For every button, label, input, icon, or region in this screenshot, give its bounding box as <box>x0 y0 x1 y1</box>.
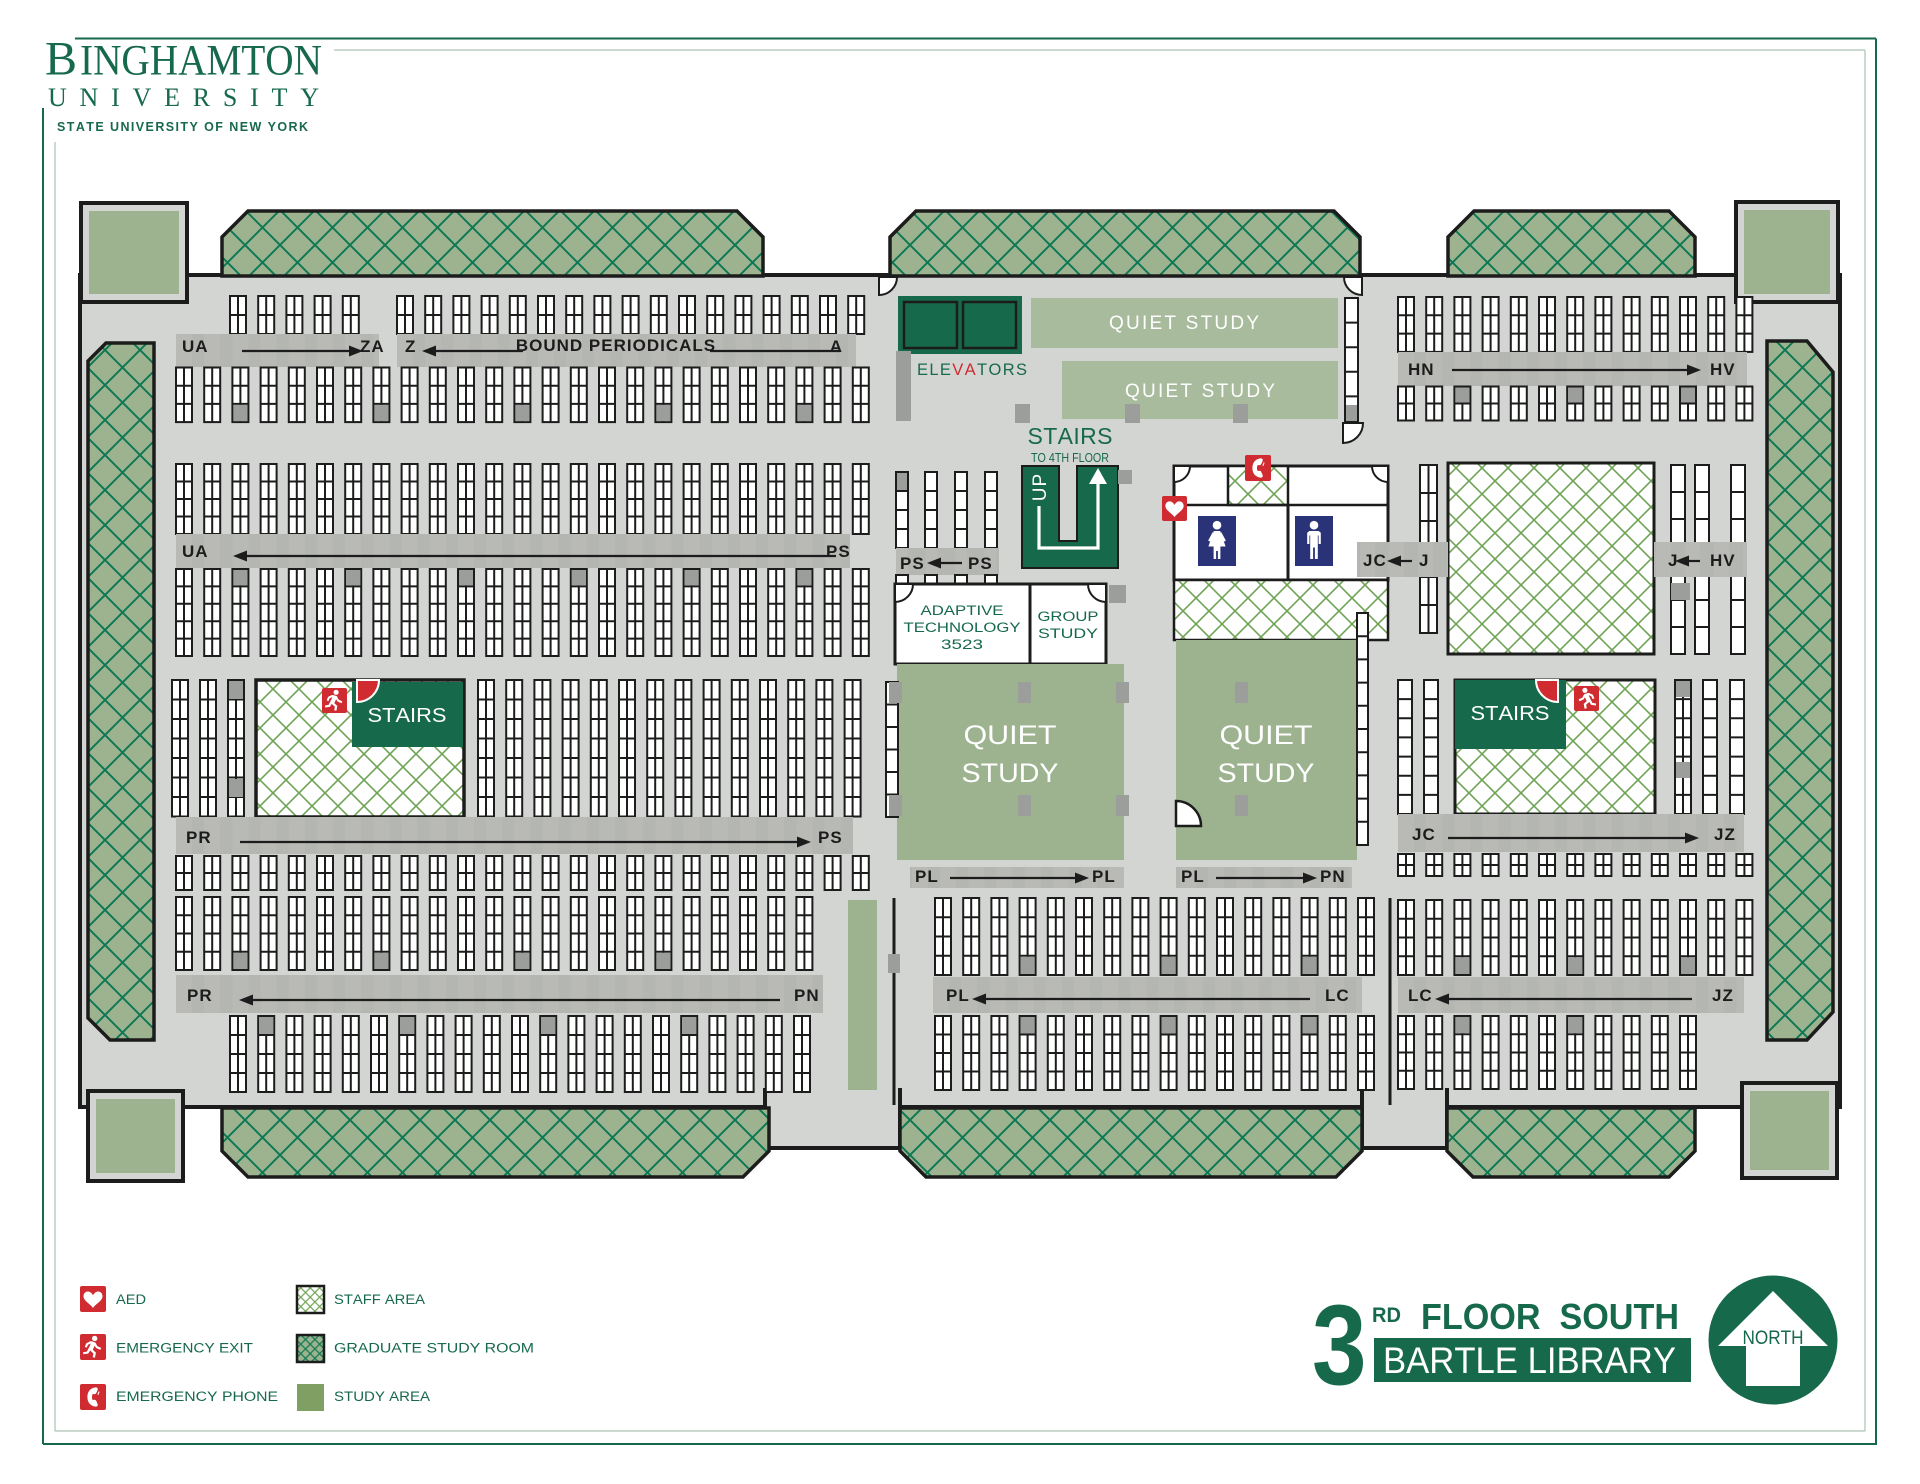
svg-text:GROUP: GROUP <box>1038 609 1099 624</box>
svg-text:UA: UA <box>182 337 209 356</box>
svg-text:EMERGENCY PHONE: EMERGENCY PHONE <box>116 1389 278 1404</box>
svg-text:PS: PS <box>900 554 925 573</box>
svg-text:EMERGENCY EXIT: EMERGENCY EXIT <box>116 1341 253 1356</box>
svg-text:UP: UP <box>1030 473 1051 501</box>
svg-text:QUIET: QUIET <box>1220 720 1313 750</box>
svg-text:PN: PN <box>794 986 820 1005</box>
svg-text:ELEVATORS: ELEVATORS <box>917 361 1027 379</box>
svg-text:HV: HV <box>1710 360 1736 379</box>
svg-text:FLOOR SOUTH: FLOOR SOUTH <box>1421 1296 1679 1337</box>
svg-text:STAIRS: STAIRS <box>1471 703 1550 725</box>
svg-text:Z: Z <box>405 337 416 356</box>
svg-text:RD: RD <box>1372 1304 1401 1327</box>
svg-text:LC: LC <box>1408 986 1433 1005</box>
svg-text:ADAPTIVE: ADAPTIVE <box>921 603 1004 618</box>
svg-text:JZ: JZ <box>1714 825 1736 844</box>
svg-text:JZ: JZ <box>1712 986 1734 1005</box>
svg-text:TECHNOLOGY: TECHNOLOGY <box>904 620 1021 635</box>
svg-text:HV: HV <box>1710 551 1736 570</box>
svg-text:PS: PS <box>818 828 843 847</box>
svg-text:PL: PL <box>1181 867 1205 886</box>
svg-text:PL: PL <box>915 867 939 886</box>
svg-text:3523: 3523 <box>941 637 983 652</box>
svg-text:STAFF AREA: STAFF AREA <box>334 1292 425 1307</box>
svg-text:JC: JC <box>1412 825 1436 844</box>
svg-text:GRADUATE STUDY ROOM: GRADUATE STUDY ROOM <box>334 1341 534 1356</box>
svg-text:HN: HN <box>1408 360 1435 379</box>
svg-text:STAIRS: STAIRS <box>368 705 447 727</box>
svg-text:PL: PL <box>1092 867 1116 886</box>
svg-text:UA: UA <box>182 542 209 561</box>
svg-text:LC: LC <box>1325 986 1350 1005</box>
svg-text:PN: PN <box>1320 867 1346 886</box>
svg-text:STATE UNIVERSITY OF NEW YORK: STATE UNIVERSITY OF NEW YORK <box>57 120 308 134</box>
svg-text:B: B <box>45 33 77 86</box>
svg-text:STUDY: STUDY <box>1038 626 1098 641</box>
svg-text:PS: PS <box>968 554 993 573</box>
svg-text:ZA: ZA <box>360 337 385 356</box>
svg-text:J: J <box>1419 551 1429 570</box>
svg-text:PR: PR <box>186 828 212 847</box>
svg-text:QUIET: QUIET <box>964 720 1057 750</box>
svg-text:BARTLE LIBRARY: BARTLE LIBRARY <box>1383 1340 1676 1381</box>
svg-text:TO 4TH FLOOR: TO 4TH FLOOR <box>1031 451 1109 465</box>
svg-text:STUDY: STUDY <box>962 758 1059 788</box>
svg-text:STAIRS: STAIRS <box>1028 423 1113 449</box>
svg-text:PS: PS <box>826 542 851 561</box>
svg-text:NORTH: NORTH <box>1743 1328 1804 1349</box>
svg-text:AED: AED <box>116 1292 146 1307</box>
svg-text:BOUND PERIODICALS: BOUND PERIODICALS <box>516 336 716 355</box>
svg-text:JC: JC <box>1363 551 1387 570</box>
svg-text:A: A <box>830 337 843 356</box>
svg-text:PR: PR <box>187 986 213 1005</box>
svg-text:STUDY AREA: STUDY AREA <box>334 1389 430 1404</box>
svg-text:PL: PL <box>946 986 970 1005</box>
svg-text:3: 3 <box>1312 1281 1367 1409</box>
svg-text:STUDY: STUDY <box>1218 758 1315 788</box>
svg-text:INGHAMTON: INGHAMTON <box>80 38 322 85</box>
